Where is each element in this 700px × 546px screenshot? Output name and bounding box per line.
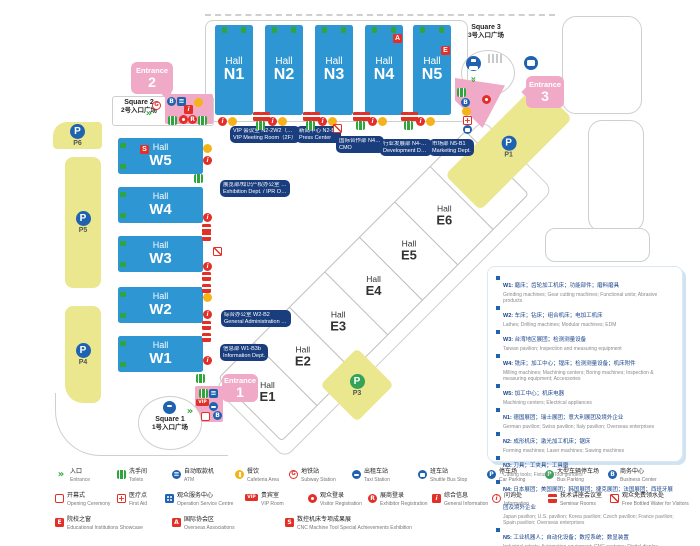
information-icon [218, 117, 227, 126]
hall-n2: HallN2 [265, 25, 303, 115]
legend-label-cn: 综合信息 [444, 493, 488, 501]
toilets-icon [168, 116, 177, 125]
directory-cn: 成形机床；激光加工机床；锯床 [513, 439, 590, 445]
development-dept-callout: 行业发展部 N4-B2cDevelopment Dept. [380, 139, 432, 156]
parking-icon [76, 211, 91, 226]
opening-ceremony-icon [201, 412, 210, 421]
information-icon [203, 310, 212, 319]
entrance-3-tag: Entrance3 [526, 76, 564, 108]
cafeteria-icon [203, 293, 212, 302]
legend-toilets: 洗手间Toilets [117, 469, 147, 483]
taxi-icon [209, 402, 218, 411]
callout-cn: 信息部 W1-B3b [223, 346, 265, 353]
hall-ref: N5: [503, 535, 512, 541]
overseas-associations-icon [172, 518, 181, 527]
parking-p6: P6 [53, 122, 102, 149]
directory-item-w4: W4: 铣床；加工中心；镗床；检测测量设备；机床附件Milling machin… [496, 352, 675, 382]
hall-w3: HallW3 [118, 236, 203, 272]
toilets-icon [198, 116, 207, 125]
hall-code: E5 [401, 248, 417, 262]
square3-label: Square 3 3号入口广场 [453, 24, 519, 40]
opening-ceremony-icon [55, 494, 64, 503]
hall-ref: W5: [503, 391, 513, 397]
legend-vip-room: 贵宾室VIP Room [245, 493, 284, 507]
legend-label-en: Toilets [129, 477, 147, 483]
atm-icon [172, 470, 181, 479]
callout-cn: 国际合作部 N4-M4 [339, 138, 381, 145]
parking-p4: P4 [65, 306, 101, 403]
zone-e-badge: E [441, 46, 450, 55]
legend-first-aid: 医疗点First Aid [117, 493, 147, 507]
cafeteria-icon [426, 117, 435, 126]
hall-w2: HallW2 [118, 287, 203, 323]
directory-en: Milling machines; Machining centers; Bor… [503, 370, 675, 382]
hall-code: N5 [422, 67, 442, 84]
legend-label-en: CNC Machine Tool Special Achievements Ex… [297, 525, 412, 531]
visitor-registration-icon [482, 95, 491, 104]
visitor-registration-icon [308, 494, 317, 503]
parking-icon [501, 135, 516, 150]
legend-label-cn: 观众服务中心 [177, 493, 233, 501]
pedestrian-crossing [488, 54, 504, 63]
hall-word: Hall [260, 381, 276, 390]
legend-label-en: Overseas Associations [184, 525, 235, 531]
toilets-icon [196, 374, 205, 383]
bullet-icon [496, 306, 500, 310]
hall-ref: W4: [503, 361, 513, 367]
legend-label-en: Entrance [70, 477, 90, 483]
directory-cn: 加工中心；机床电器 [515, 391, 565, 397]
hall-code: W2 [149, 302, 172, 318]
hall-w5: HallW5 [118, 138, 203, 174]
information-icon [268, 117, 277, 126]
parking-icon [70, 124, 85, 139]
cmo-callout: 国际合作部 N4-M4CMO [336, 136, 384, 153]
hall-code: N4 [374, 67, 394, 84]
callout-en: Marketing Dept. [432, 148, 471, 155]
service-centre-icon [165, 494, 174, 503]
hall-ref: W3: [503, 337, 513, 343]
bus-parking-icon [350, 374, 365, 389]
subway-station-icon [289, 470, 298, 479]
directory-cn: 车床；钻床；组合机床；电加工机床 [515, 313, 603, 319]
legend-label-cn: 入口 [70, 469, 90, 477]
toilets-icon [356, 121, 365, 130]
parking-p5: P5 [65, 157, 101, 288]
directory-cn: 台湾地区展团；检测测量设备 [515, 337, 587, 343]
general-information-icon [184, 105, 193, 114]
directory-cn: 铣床；加工中心；镗床；检测测量设备；机床附件 [515, 361, 636, 367]
marketing-dept-callout: 市场部 N5-B1Marketing Dept. [429, 139, 474, 156]
seminar-room-icon [202, 232, 211, 241]
shuttle-bus-icon [524, 56, 538, 70]
hall-code: N1 [224, 67, 244, 84]
legend-subway: 地铁站Subway Station [289, 469, 336, 483]
legend-atm: 自动取款机ATM [172, 469, 214, 483]
callout-en: VIP Meeting Room（2F） [233, 135, 297, 142]
square-name-cn: 3号入口广场 [453, 32, 519, 40]
cnc-achievements-icon [285, 518, 294, 527]
legend-label-cn: 开幕式 [67, 493, 110, 501]
toilets-icon [194, 174, 203, 183]
directory-en: Grinding machines; Gear cutting machines… [503, 292, 675, 304]
toilets-icon [306, 121, 315, 130]
educational-icon [55, 518, 64, 527]
first-aid-icon [117, 494, 126, 503]
hall-code: N3 [324, 67, 344, 84]
legend-label-en: First Aid [129, 501, 147, 507]
legend-overseas-associations: 国际协会区Overseas Associations [172, 517, 235, 531]
general-information-icon [432, 494, 441, 503]
entrance-arrows-icon [55, 470, 67, 479]
legend-label-cn: 数控机床专项成果展 [297, 517, 412, 525]
legend-label-cn: 观众登录 [320, 493, 362, 501]
parking-icon [76, 343, 91, 358]
cafeteria-icon [278, 117, 287, 126]
hall-ref: W1: [503, 283, 513, 289]
subway-station-icon [152, 101, 161, 110]
cafeteria-icon [194, 98, 203, 107]
parking-code: P4 [79, 359, 88, 366]
legend-entrance: 入口Entrance [55, 469, 90, 483]
toilets-icon [117, 470, 126, 479]
directory-item-w5: W5: 加工中心；机床电器Machining centers; Electric… [496, 382, 675, 406]
hall-n5: HallN5 [413, 25, 451, 115]
boundary-dashed-line [205, 14, 555, 16]
business-center-icon [213, 411, 222, 420]
callout-en: CMO [339, 145, 381, 152]
hall-w4: HallW4 [118, 187, 203, 223]
legend-label-en: VIP Room [261, 501, 284, 507]
cafeteria-icon [378, 117, 387, 126]
seminar-room-icon [202, 321, 211, 330]
atm-icon [209, 389, 218, 398]
legend-label-cn: 国际协会区 [184, 517, 235, 525]
hall-n1: HallN1 [215, 25, 253, 115]
information-icon [416, 117, 425, 126]
legend-label-en: Operation Service Centre [177, 501, 233, 507]
seminar-room-icon [202, 333, 211, 342]
callout-en: Exhibition Dept. / IPR Office [223, 189, 287, 196]
legend-label-en: Cafeteria Area [247, 477, 279, 483]
parking-code: P3 [353, 390, 362, 397]
directory-item-n5: N5: 工业机器人；自动化设备；数控系统；数显装置Industrial robo… [496, 526, 675, 546]
toilets-icon [256, 121, 265, 130]
parking-code: P1 [504, 151, 513, 158]
legend-visitor-registration: 观众登录Visitor Registration [308, 493, 362, 507]
information-icon [203, 156, 212, 165]
seminar-room-icon [202, 284, 211, 293]
hall-ref: N3: [503, 463, 512, 469]
callout-cn: 行业发展部 N4-B2c [383, 141, 429, 148]
legend-label-cn: 出租车站 [364, 469, 390, 477]
callout-cn: 展览部/知识产权办公室 W5-M8 [223, 182, 287, 189]
hall-code: N2 [274, 67, 294, 84]
entrance-1-tag: Entrance1 [222, 374, 258, 402]
information-icon [368, 117, 377, 126]
shuttle-bus-icon [418, 470, 427, 479]
business-center-icon [461, 98, 470, 107]
general-admin-office-callout: 综合办公室 W2-B2General Administration Office [221, 310, 291, 327]
car-parking-icon [487, 470, 496, 479]
legend-label-cn: 洗手间 [129, 469, 147, 477]
exhibition-dept-callout: 展览部/知识产权办公室 W5-M8Exhibition Dept. / IPR … [220, 180, 290, 197]
callout-en: Press Center [299, 135, 338, 142]
hall-code: E4 [366, 284, 382, 298]
exhibitor-registration-icon [188, 115, 197, 124]
directory-item-n3: N3: 刀具；工夹具；工具磨Cutting tools; Fixtures; T… [496, 454, 675, 478]
exhibition-ground-map: HallE1 HallE2 HallE3 HallE4 HallE5 HallE… [0, 0, 700, 546]
taxi-icon [352, 470, 361, 479]
legend-label-cn: 地铁站 [301, 469, 336, 477]
legend-label-cn: 自动取款机 [184, 469, 214, 477]
directory-cn: 德国展团；瑞士展团；意大利展团及境外企业 [513, 415, 623, 421]
entrance-arrows-icon [143, 109, 155, 118]
legend-exhibitor-registration: 展商登录Exhibitor Registration [368, 493, 428, 507]
legend-educational: 院校之窗Educational Institutions Showcase [55, 517, 143, 531]
legend-label-cn: 院校之窗 [67, 517, 143, 525]
zone-a-badge: A [393, 34, 402, 43]
shuttle-bus-icon [463, 125, 472, 134]
entrance-arrows-icon [469, 74, 478, 86]
hall-ref: W2: [503, 313, 513, 319]
callout-cn: VIP 会议室 N2-2W2（二层） [233, 128, 297, 135]
hall-directory-panel: W1: 磨床；齿轮加工机床；功能部件；磨料磨具Grinding machines… [487, 266, 683, 462]
information-dept-callout: 信息部 W1-B3bInformation Dept. [220, 344, 268, 361]
hall-code: W1 [149, 351, 172, 367]
vip-room-icon [245, 494, 258, 501]
legend-label-en: Shuttle Bus Stop [430, 477, 467, 483]
cafeteria-icon [203, 144, 212, 153]
entrance-2-tag: Entrance2 [131, 62, 173, 94]
information-icon [318, 117, 327, 126]
visitor-registration-icon [179, 115, 188, 124]
callout-cn: 综合办公室 W2-B2 [224, 312, 288, 319]
parking-p3: P3 [320, 348, 394, 422]
parking-code: P5 [79, 227, 88, 234]
callout-en: Information Dept. [223, 353, 265, 360]
cafeteria-icon [462, 107, 471, 116]
bullet-icon [496, 276, 500, 280]
bottom-right-road-outline [545, 228, 650, 262]
exhibitor-registration-icon [368, 494, 377, 503]
hall-code: W5 [149, 153, 172, 169]
legend-label-en: Visitor Registration [320, 501, 362, 507]
toilets-icon [404, 121, 413, 130]
taxi-icon [163, 401, 176, 414]
bullet-icon [496, 528, 500, 532]
bullet-icon [496, 354, 500, 358]
legend-label-cn: 班车站 [430, 469, 467, 477]
directory-item-w3: W3: 台湾地区展团；检测测量设备Taiwan pavilion; Inspec… [496, 328, 675, 352]
vip-meeting-room-callout: VIP 会议室 N2-2W2（二层）VIP Meeting Room（2F） [230, 126, 300, 143]
legend-shuttle-bus: 班车站Shuttle Bus Stop [418, 469, 467, 483]
entrance-number: 2 [148, 75, 156, 89]
legend-service-centre: 观众服务中心Operation Service Centre [165, 493, 233, 507]
callout-cn: 市场部 N5-B1 [432, 141, 471, 148]
vip-room-icon [196, 399, 209, 406]
directory-cn: 工业机器人；自动化设备；数控系统；数显装置 [513, 535, 629, 541]
bullet-icon [496, 408, 500, 412]
legend-label-en: Exhibitor Registration [380, 501, 428, 507]
hall-ref: N4: [503, 487, 512, 493]
hall-code: W3 [149, 251, 172, 267]
legend-taxi: 出租车站Taxi Station [352, 469, 390, 483]
hall-code: E2 [295, 354, 311, 368]
information-icon [203, 262, 212, 271]
information-icon [203, 213, 212, 222]
taxi-drop-off-icon [466, 56, 481, 71]
legend-label-cn: 展商登录 [380, 493, 428, 501]
legend-label-en: Educational Institutions Showcase [67, 525, 143, 531]
hall-w1: HallW1 [118, 336, 203, 372]
legend-label-en: General Information [444, 501, 488, 507]
callout-en: Development Dept. [383, 148, 429, 155]
bullet-icon [496, 432, 500, 436]
free-water-icon [213, 247, 222, 256]
right-road-outline [588, 120, 644, 232]
legend-general-information: 综合信息General Information [432, 493, 488, 507]
hall-code: E3 [330, 319, 346, 333]
directory-item-w1: W1: 磨床；齿轮加工机床；功能部件；磨料磨具Grinding machines… [496, 274, 675, 304]
legend-label-cn: 医疗点 [129, 493, 147, 501]
first-aid-icon [463, 116, 472, 125]
directory-item-w2: W2: 车床；钻床；组合机床；电加工机床Lathes; Drilling mac… [496, 304, 675, 328]
legend-label-cn: 贵宾室 [261, 493, 284, 501]
bullet-icon [496, 456, 500, 460]
directory-item-n4: N4: 日本展团；美国展团；韩国展团；捷克展团；法国展团；西班牙展团及境外企业J… [496, 478, 675, 526]
toilets-icon [457, 88, 466, 97]
entrance-arrows-icon [184, 407, 196, 416]
square-name-cn: 1号入口广场 [139, 424, 201, 432]
parking-code: P6 [73, 140, 82, 147]
directory-en: Japan pavilion; U.S. pavilion; Korea pav… [503, 514, 675, 526]
toilets-icon [199, 389, 208, 398]
square1-circle: Square 1 1号入口广场 [138, 396, 202, 450]
directory-cn: 刀具；工夹具；工具磨 [513, 463, 568, 469]
hall-ref: N1: [503, 415, 512, 421]
directory-item-n2: N2: 成形机床；激光加工机床；锯床Forming machines; Lase… [496, 430, 675, 454]
hall-n3: HallN3 [315, 25, 353, 115]
legend-label-en: ATM [184, 477, 214, 483]
hall-code: E1 [260, 389, 276, 403]
directory-cn: 磨床；齿轮加工机床；功能部件；磨料磨具 [515, 283, 620, 289]
hall-ref: N2: [503, 439, 512, 445]
legend-label-cn: 餐饮 [247, 469, 279, 477]
hall-code: W4 [149, 202, 172, 218]
entrance-number: 3 [541, 89, 549, 103]
legend-cnc-achievements: 数控机床专项成果展CNC Machine Tool Special Achiev… [285, 517, 412, 531]
business-center-icon [167, 97, 176, 106]
information-icon [203, 356, 212, 365]
callout-en: General Administration Office [224, 319, 288, 326]
bullet-icon [496, 480, 500, 484]
seminar-room-icon [202, 272, 211, 281]
cafeteria-icon [235, 470, 244, 479]
legend-opening-ceremony: 开幕式Opening Ceremony [55, 493, 110, 507]
legend-label-en: Subway Station [301, 477, 336, 483]
zone-s-badge: S [140, 145, 149, 154]
directory-item-n1: N1: 德国展团；瑞士展团；意大利展团及境外企业German pavilion;… [496, 406, 675, 430]
directory-cn: 日本展团；美国展团；韩国展团；捷克展团；法国展团；西班牙展团及境外企业 [503, 487, 673, 511]
cafeteria-icon [228, 117, 237, 126]
legend-label-en: Opening Ceremony [67, 501, 110, 507]
legend-cafeteria: 餐饮Cafeteria Area [235, 469, 279, 483]
bullet-icon [496, 330, 500, 334]
free-water-icon [333, 124, 342, 133]
legend-label-en: Taxi Station [364, 477, 390, 483]
bullet-icon [496, 384, 500, 388]
entrance-number: 1 [236, 385, 244, 399]
entrance3-island-outline [562, 16, 642, 114]
hall-code: E6 [436, 213, 452, 227]
